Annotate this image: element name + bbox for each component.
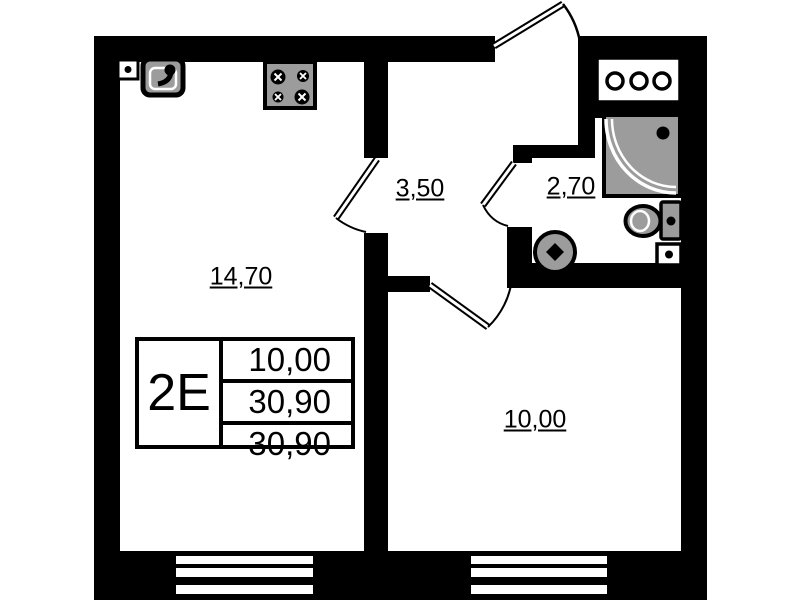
- bathroom-door: [483, 163, 514, 226]
- wall-outer-right: [681, 36, 707, 600]
- door-leaf-core: [430, 285, 488, 327]
- wall-entry-bath: [513, 145, 595, 158]
- power-outlet-icon: [118, 60, 138, 79]
- door-leaf-core: [336, 159, 377, 218]
- vent-hole-icon: [654, 73, 670, 89]
- entrance-door: [494, 4, 580, 46]
- stove-icon: [265, 62, 315, 108]
- wall-mid-upper: [364, 62, 388, 158]
- window-pane-line: [471, 568, 607, 577]
- window-pane-line: [176, 568, 313, 577]
- living-room-door: [336, 159, 377, 232]
- hallway-area-label: 3,50: [396, 177, 445, 202]
- shower-tray-icon: [604, 115, 680, 196]
- unit-type-cell: 2E: [139, 341, 223, 445]
- shower-drain: [657, 127, 670, 140]
- sink-faucet-head: [165, 65, 176, 76]
- vent-hole-icon: [631, 73, 647, 89]
- toilet-tank-button: [667, 217, 676, 226]
- table-row: 30,90: [223, 425, 351, 463]
- unit-spec-table: 2E 10,00 30,90 30,90: [135, 337, 355, 449]
- wall-mid-lower: [364, 233, 388, 551]
- power-outlet-icon: [657, 244, 681, 265]
- floor-plan-drawing: [0, 0, 799, 600]
- window-left: [176, 556, 313, 594]
- table-row: 10,00: [223, 341, 351, 383]
- window-pane-line: [176, 585, 313, 594]
- window-pane-line: [176, 556, 313, 564]
- wall-bath-left: [507, 227, 532, 267]
- floor-plan: 14,70 3,50 2,70 10,00 2E 10,00 30,90 30,…: [0, 0, 799, 600]
- wall-bath-bottom: [507, 263, 681, 288]
- bathroom-area-label: 2,70: [547, 175, 596, 200]
- wall-hall-stub: [388, 276, 430, 292]
- door-swing-arc: [336, 218, 366, 232]
- toilet-icon: [626, 202, 682, 239]
- wash-basin-icon: [535, 232, 575, 272]
- window-pane-line: [471, 556, 607, 564]
- outlet-dot: [665, 251, 673, 259]
- door-swing-arc: [483, 205, 508, 226]
- living-room-area-label: 14,70: [210, 265, 273, 290]
- kitchen-sink-icon: [143, 59, 183, 95]
- outlet-dot: [125, 66, 132, 73]
- bedroom-area-label: 10,00: [504, 408, 567, 433]
- ventilation-shaft-icon: [597, 58, 680, 102]
- vent-hole-icon: [607, 73, 623, 89]
- wall-entry-vent: [578, 36, 595, 145]
- unit-areas-column: 10,00 30,90 30,90: [223, 341, 351, 445]
- door-swing-arc: [563, 4, 580, 42]
- door-leaf-core: [494, 4, 563, 46]
- window-right: [471, 556, 607, 594]
- door-leaf-core: [483, 163, 514, 205]
- wall-outer-left: [94, 36, 120, 600]
- table-row: 30,90: [223, 383, 351, 425]
- window-pane-line: [471, 585, 607, 594]
- bedroom-door: [430, 279, 512, 327]
